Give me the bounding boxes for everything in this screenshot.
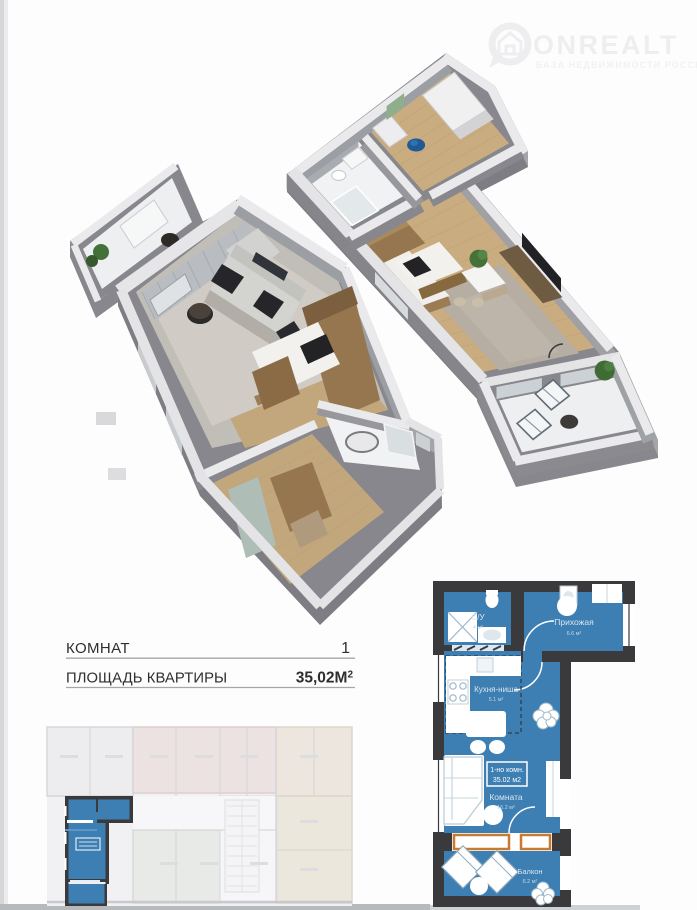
svg-text:1: 1 <box>341 640 350 657</box>
svg-text:С/У: С/У <box>471 613 485 622</box>
svg-text:35.02 м2: 35.02 м2 <box>493 777 521 784</box>
svg-text:Балкон: Балкон <box>517 867 542 876</box>
svg-text:4 м²: 4 м² <box>473 625 483 631</box>
svg-text:Кухня-ниша: Кухня-ниша <box>474 685 518 694</box>
svg-text:16.2 м²: 16.2 м² <box>497 805 515 811</box>
svg-text:6.6 м²: 6.6 м² <box>567 631 582 637</box>
svg-text:35,02М2: 35,02М2 <box>296 670 354 687</box>
svg-text:1-но комн.: 1-но комн. <box>490 767 524 774</box>
svg-text:БАЗА НЕДВИЖИМОСТИ РОССИИ: БАЗА НЕДВИЖИМОСТИ РОССИИ <box>536 60 697 70</box>
svg-text:5.1 м²: 5.1 м² <box>489 697 504 703</box>
svg-text:ПЛОЩАДЬ КВАРТИРЫ: ПЛОЩАДЬ КВАРТИРЫ <box>66 671 227 687</box>
svg-text:Прихожая: Прихожая <box>554 617 594 627</box>
svg-text:Комната: Комната <box>489 792 523 802</box>
svg-text:6.2 м²: 6.2 м² <box>523 879 538 885</box>
svg-text:КОМНАТ: КОМНАТ <box>66 640 130 657</box>
svg-text:ONREALT: ONREALT <box>533 30 679 60</box>
